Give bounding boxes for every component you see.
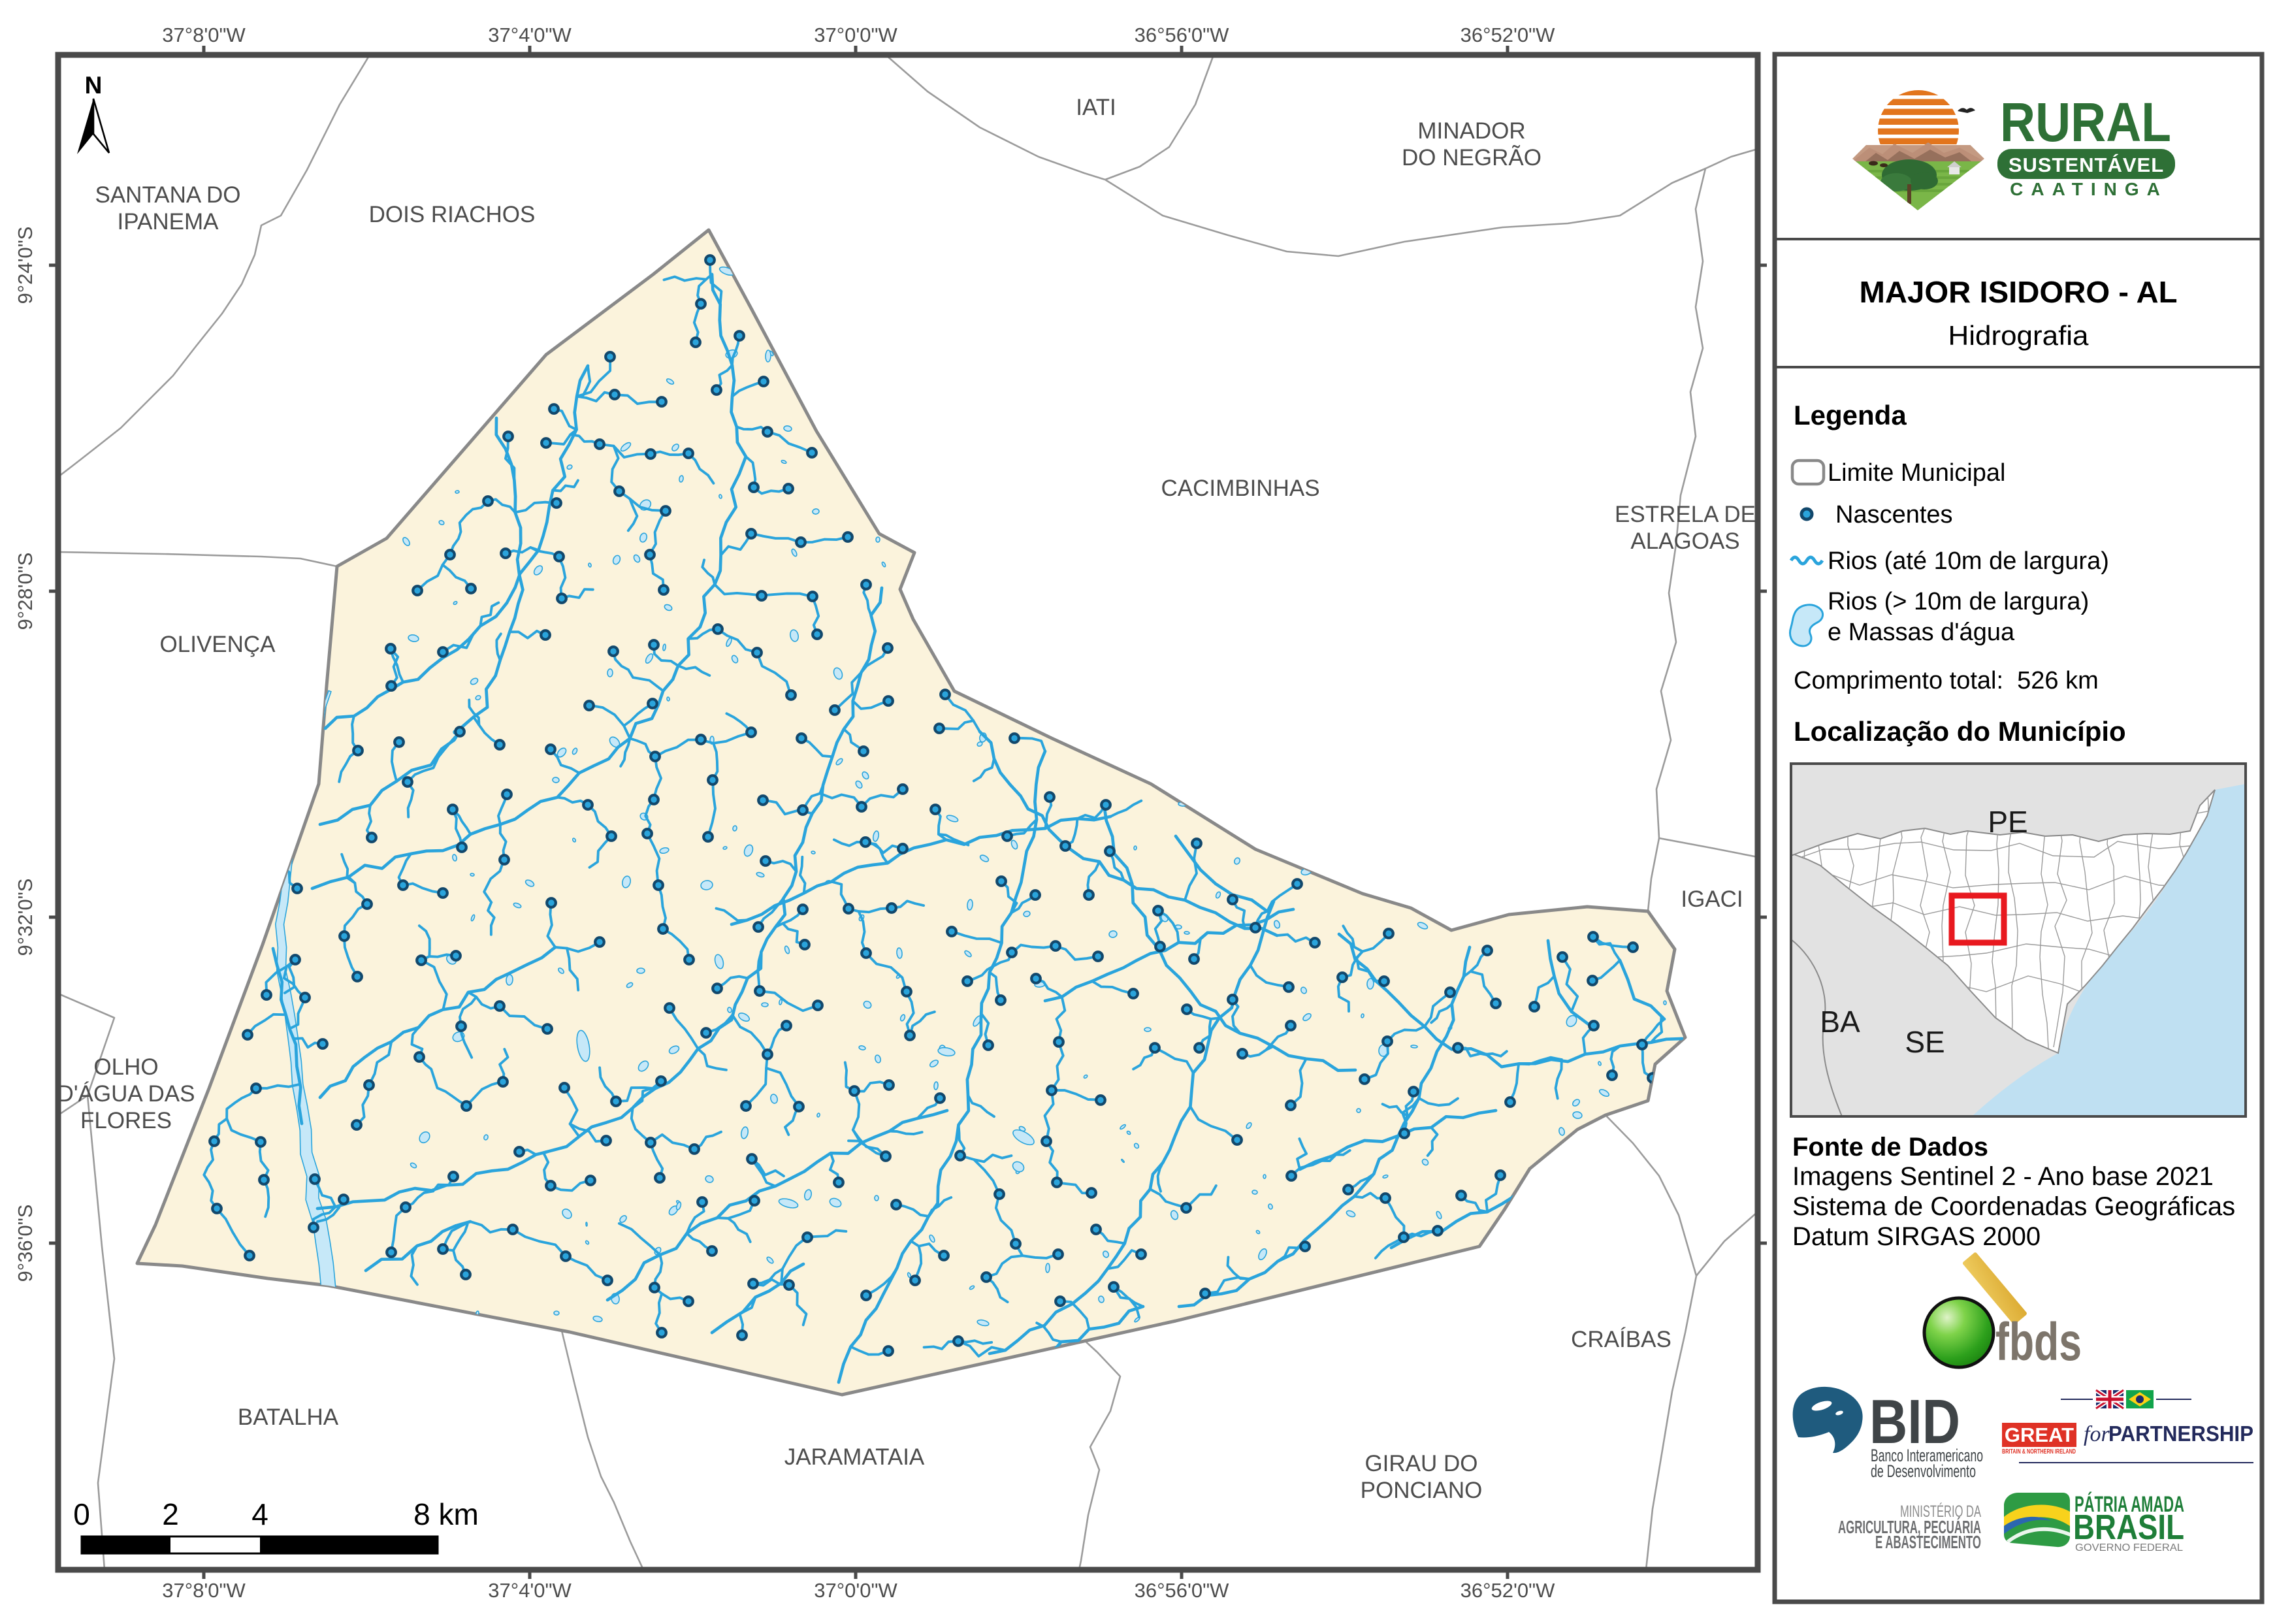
svg-text:4: 4 xyxy=(251,1497,268,1531)
svg-text:9°24'0"S: 9°24'0"S xyxy=(14,227,37,304)
svg-text:Legenda: Legenda xyxy=(1794,400,1907,430)
svg-text:JARAMATAIA: JARAMATAIA xyxy=(784,1444,925,1470)
svg-text:MINADOR: MINADOR xyxy=(1417,118,1525,144)
svg-text:Sistema de Coordenadas Geográf: Sistema de Coordenadas Geográficas xyxy=(1792,1192,2235,1221)
svg-text:37°0'0"W: 37°0'0"W xyxy=(814,1579,897,1602)
svg-text:Imagens Sentinel 2 - Ano base: Imagens Sentinel 2 - Ano base 2021 xyxy=(1792,1162,2214,1191)
svg-text:for: for xyxy=(2084,1422,2110,1446)
svg-text:ALAGOAS: ALAGOAS xyxy=(1630,528,1739,554)
svg-text:Localização do Município: Localização do Município xyxy=(1794,716,2126,747)
svg-text:36°52'0"W: 36°52'0"W xyxy=(1461,1579,1556,1602)
svg-text:GREAT: GREAT xyxy=(2005,1423,2074,1446)
svg-text:9°36'0"S: 9°36'0"S xyxy=(14,1205,37,1282)
svg-text:BRASIL: BRASIL xyxy=(2073,1508,2184,1547)
svg-text:Fonte de Dados: Fonte de Dados xyxy=(1792,1133,1988,1161)
svg-text:OLIVENÇA: OLIVENÇA xyxy=(160,632,276,657)
svg-text:Comprimento total: 526 km: Comprimento total: 526 km xyxy=(1794,667,2099,694)
svg-text:CAATINGA: CAATINGA xyxy=(2010,179,2168,199)
svg-text:Datum SIRGAS 2000: Datum SIRGAS 2000 xyxy=(1792,1222,2041,1251)
svg-text:BATALHA: BATALHA xyxy=(238,1405,339,1430)
svg-text:Rios (até 10m de largura): Rios (até 10m de largura) xyxy=(1828,547,2109,575)
svg-text:FLORES: FLORES xyxy=(80,1108,172,1133)
svg-text:fbds: fbds xyxy=(1995,1312,2082,1372)
svg-text:GIRAU DO: GIRAU DO xyxy=(1364,1451,1477,1476)
svg-text:9°28'0"S: 9°28'0"S xyxy=(14,553,37,630)
svg-text:N: N xyxy=(85,72,103,99)
svg-text:DOIS RIACHOS: DOIS RIACHOS xyxy=(369,202,536,227)
svg-text:MAJOR ISIDORO - AL: MAJOR ISIDORO - AL xyxy=(1860,275,2178,309)
svg-text:Hidrografia: Hidrografia xyxy=(1948,320,2090,351)
svg-text:BA: BA xyxy=(1820,1005,1860,1039)
svg-text:Rios (> 10m de largura): Rios (> 10m de largura) xyxy=(1828,588,2089,615)
svg-text:37°0'0"W: 37°0'0"W xyxy=(814,24,897,46)
svg-text:D'ÁGUA DAS: D'ÁGUA DAS xyxy=(57,1081,195,1107)
svg-text:CRAÍBAS: CRAÍBAS xyxy=(1571,1327,1671,1352)
svg-text:37°4'0"W: 37°4'0"W xyxy=(488,1579,572,1602)
svg-text:BRITAIN & NORTHERN IRELAND: BRITAIN & NORTHERN IRELAND xyxy=(2002,1448,2076,1455)
svg-text:OLHO: OLHO xyxy=(93,1054,158,1080)
svg-text:RURAL: RURAL xyxy=(2000,91,2171,153)
svg-text:8 km: 8 km xyxy=(413,1497,479,1531)
svg-text:IPANEMA: IPANEMA xyxy=(118,209,219,235)
svg-text:ESTRELA DE: ESTRELA DE xyxy=(1615,502,1756,527)
svg-text:e Massas d'água: e Massas d'água xyxy=(1828,619,2015,646)
svg-text:2: 2 xyxy=(162,1497,179,1531)
svg-text:de Desenvolvimento: de Desenvolvimento xyxy=(1871,1461,1976,1481)
svg-text:PARTNERSHIP: PARTNERSHIP xyxy=(2108,1421,2253,1446)
svg-text:E ABASTECIMENTO: E ABASTECIMENTO xyxy=(1875,1532,1981,1552)
svg-text:IGACI: IGACI xyxy=(1681,886,1743,912)
svg-text:GOVERNO FEDERAL: GOVERNO FEDERAL xyxy=(2075,1542,2183,1553)
svg-text:SANTANA DO: SANTANA DO xyxy=(95,182,240,208)
svg-text:37°8'0"W: 37°8'0"W xyxy=(162,1579,246,1602)
svg-text:IATI: IATI xyxy=(1076,95,1116,120)
svg-text:9°32'0"S: 9°32'0"S xyxy=(14,879,37,956)
svg-text:37°4'0"W: 37°4'0"W xyxy=(488,24,572,46)
svg-text:Nascentes: Nascentes xyxy=(1835,501,1953,528)
svg-text:SE: SE xyxy=(1905,1025,1945,1059)
svg-text:36°56'0"W: 36°56'0"W xyxy=(1135,24,1230,46)
svg-text:36°56'0"W: 36°56'0"W xyxy=(1135,1579,1230,1602)
svg-text:0: 0 xyxy=(73,1497,90,1531)
svg-text:PONCIANO: PONCIANO xyxy=(1361,1478,1483,1503)
svg-text:Limite Municipal: Limite Municipal xyxy=(1828,459,2005,487)
svg-text:SUSTENTÁVEL: SUSTENTÁVEL xyxy=(2009,154,2164,176)
svg-text:CACIMBINHAS: CACIMBINHAS xyxy=(1161,476,1319,501)
svg-text:36°52'0"W: 36°52'0"W xyxy=(1461,24,1556,46)
svg-text:DO NEGRÃO: DO NEGRÃO xyxy=(1402,145,1541,171)
svg-text:PE: PE xyxy=(1988,805,2027,839)
svg-text:37°8'0"W: 37°8'0"W xyxy=(162,24,246,46)
